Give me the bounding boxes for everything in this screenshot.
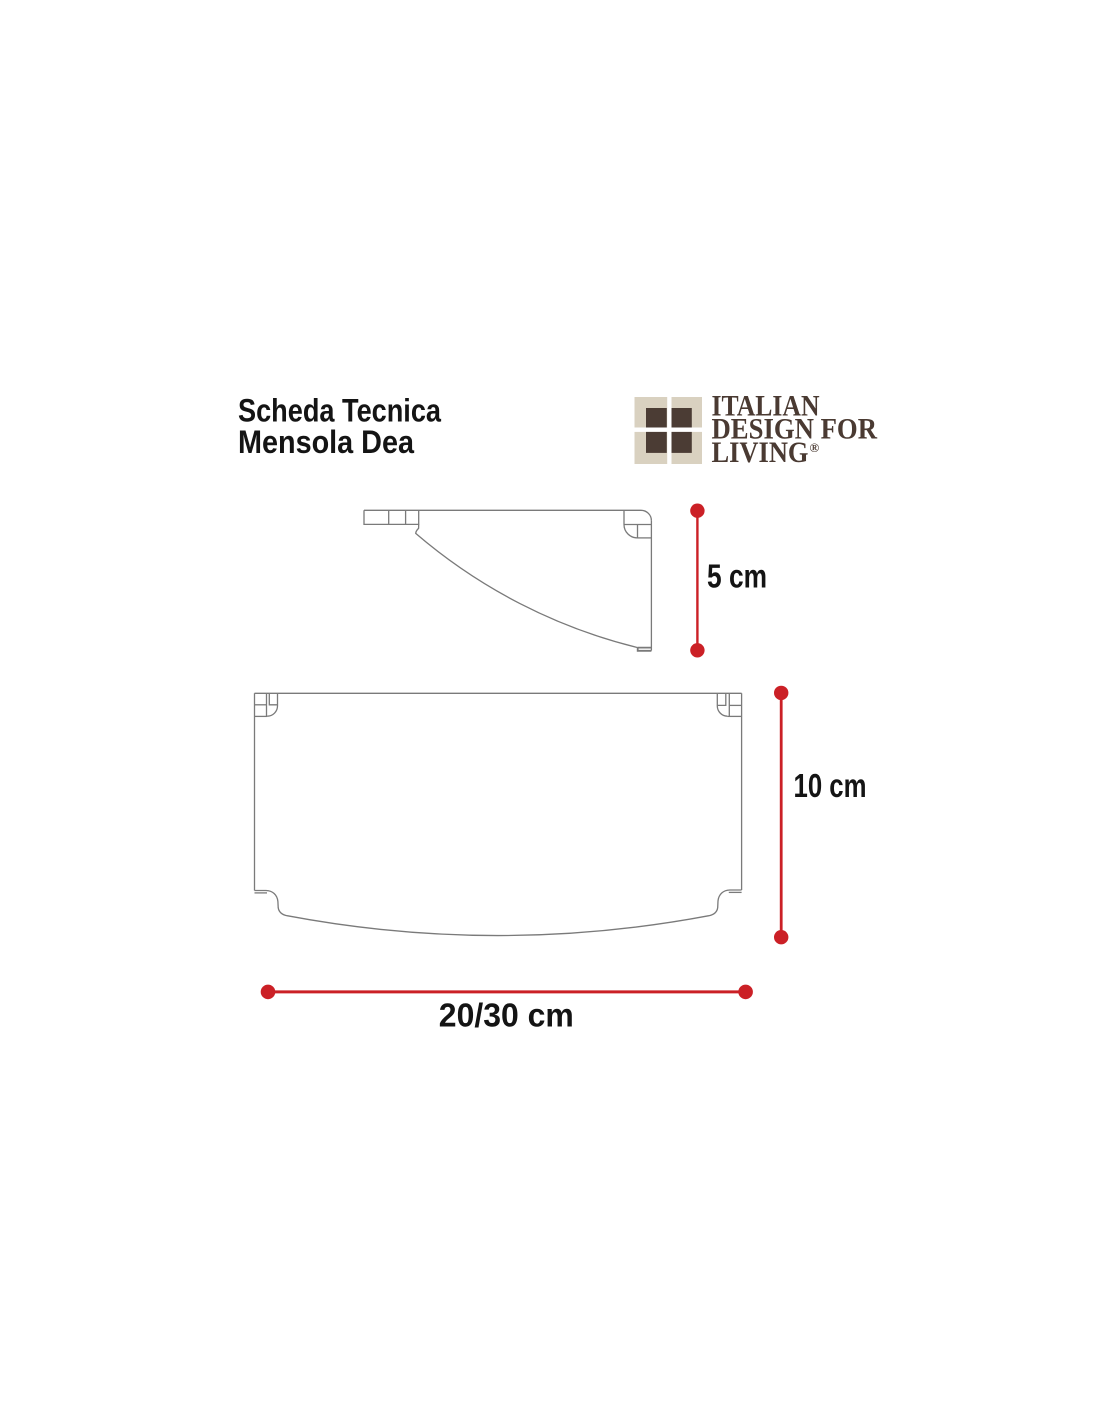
svg-text:20/30 cm: 20/30 cm [439, 996, 574, 1033]
svg-text:10 cm: 10 cm [794, 767, 867, 804]
svg-text:5 cm: 5 cm [707, 557, 767, 594]
